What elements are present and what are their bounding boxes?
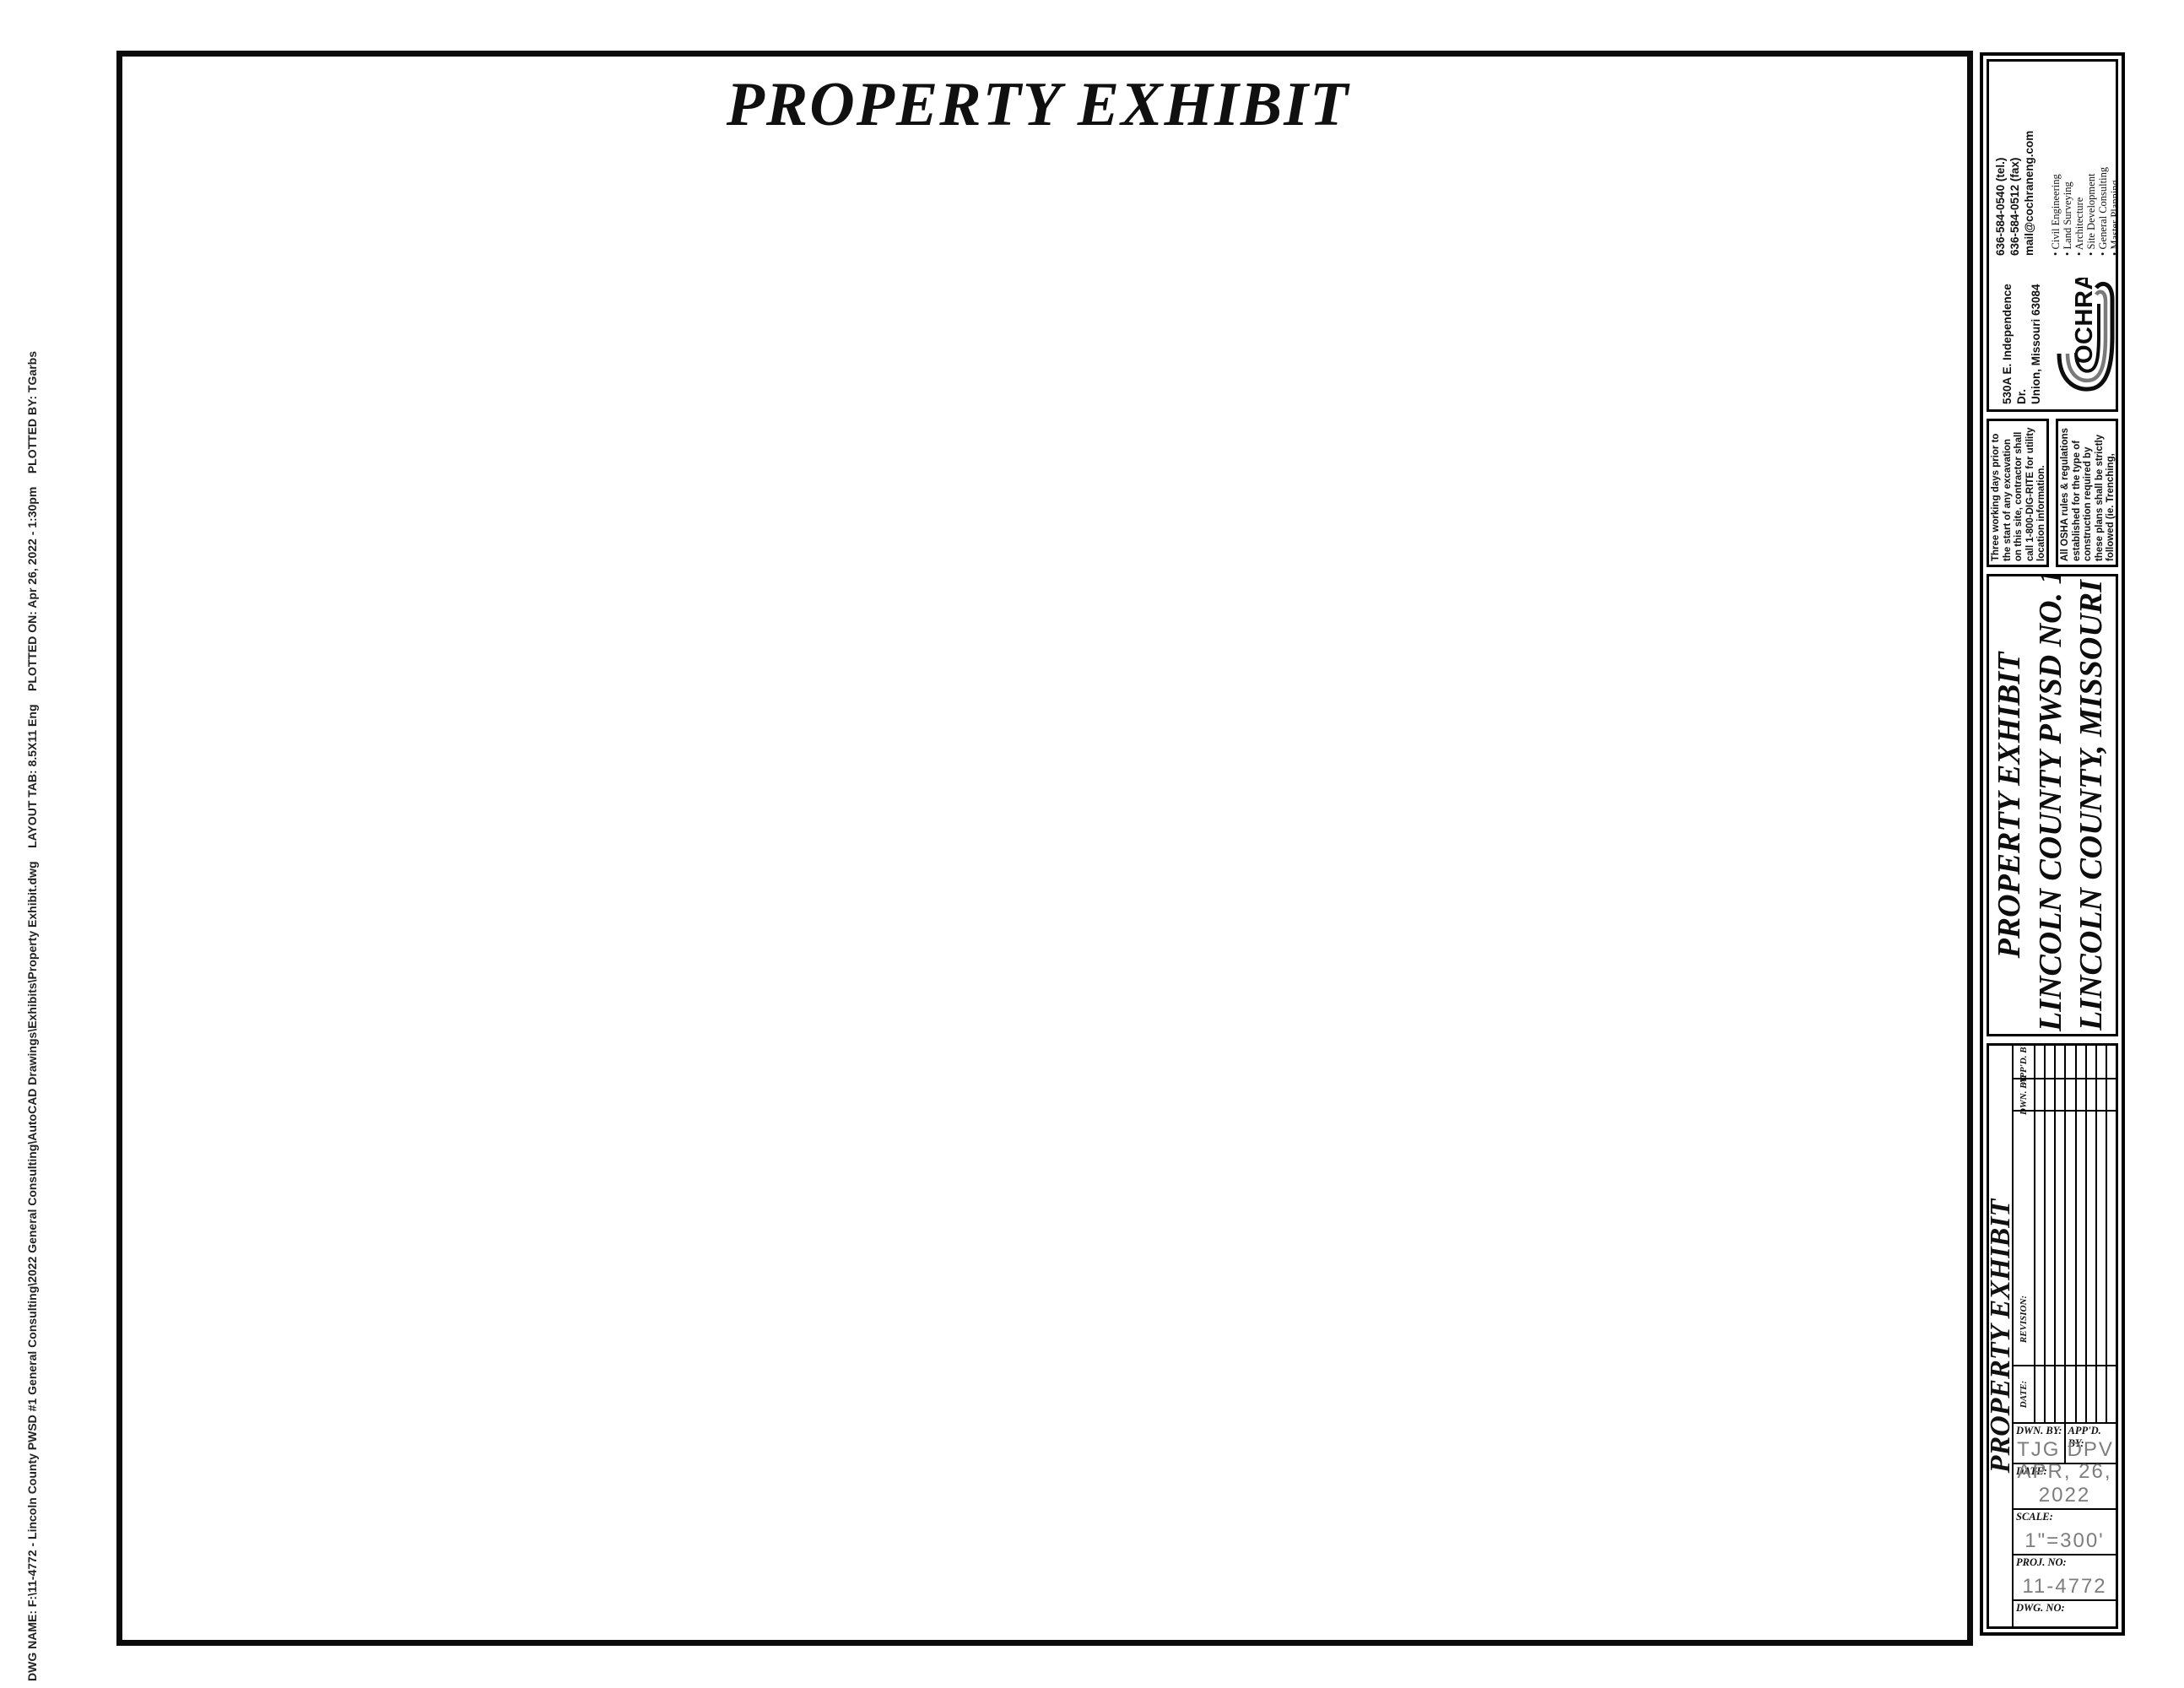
project-line3: LINCOLN COUNTY, MISSOURI <box>2071 579 2112 1031</box>
revision-band-date: DATE: <box>2014 1366 2116 1424</box>
service-item: Site Development <box>2085 67 2097 256</box>
title-block-side-label: PROPERTY EXHIBIT <box>1987 1199 2017 1474</box>
title-block-side-label-cell: PROPERTY EXHIBIT <box>1989 1046 2014 1626</box>
rev-date-label: DATE: <box>2019 1381 2029 1408</box>
company-email: mail@cochraneng.com <box>2023 67 2037 256</box>
project-number-cell: PROJ. NO: 11-4772 <box>2014 1555 2116 1601</box>
scale-label: SCALE: <box>2016 1511 2053 1523</box>
title-block: PROPERTY EXHIBIT APP'D. BY: DWN. BY: REV… <box>1987 1043 2118 1629</box>
service-item: Civil Engineering <box>2050 67 2062 256</box>
dwn-by-value: TJG <box>2014 1438 2064 1462</box>
osha-note: All OSHA rules & regulations established… <box>2056 419 2118 567</box>
appd-by-value: DPV <box>2066 1438 2116 1462</box>
map-frame <box>116 51 1973 1646</box>
drawing-number-cell: DWG. NO: EX. 1 <box>2014 1601 2116 1626</box>
dwg-no-label: DWG. NO: <box>2016 1602 2065 1615</box>
rev-dwn-label: DWN. BY: <box>2019 1074 2029 1115</box>
service-item: Master Planning <box>2109 67 2118 256</box>
company-fax: 636-584-0512 (fax) <box>2008 67 2023 256</box>
revision-band-appd: APP'D. BY: <box>2014 1046 2116 1079</box>
date-cell: DATE: APR, 26, 2022 <box>2014 1464 2116 1510</box>
byline-row: DWN. BY: TJG APP'D. BY: DPV <box>2014 1424 2116 1464</box>
scale-value: 1"=300' <box>2014 1529 2116 1553</box>
proj-no-value: 11-4772 <box>2014 1575 2116 1599</box>
rev-revision-label: REVISION: <box>2019 1296 2029 1343</box>
company-panel: 530A E. Independence Dr. Union, Missouri… <box>1987 59 2118 412</box>
company-address-line1: 530A E. Independence Dr. <box>2001 278 2030 404</box>
drawn-by-cell: DWN. BY: TJG <box>2014 1424 2064 1463</box>
notes-panels: Three working days prior to the start of… <box>1983 415 2122 571</box>
dwn-by-label: DWN. BY: <box>2016 1425 2062 1437</box>
drawing-sheet: DWG NAME: F:\11-4772 - Lincoln County PW… <box>0 0 2184 1688</box>
service-item: Architecture <box>2073 67 2085 256</box>
title-block-sidebar: 530A E. Independence Dr. Union, Missouri… <box>1980 52 2125 1636</box>
revision-band-dwn: DWN. BY: <box>2014 1079 2116 1112</box>
dig-rite-note: Three working days prior to the start of… <box>1987 419 2049 567</box>
company-services: Civil Engineering Land Surveying Archite… <box>2050 67 2118 278</box>
sheet-title: PROPERTY EXHIBIT <box>338 69 1738 141</box>
project-line2: LINCOLN COUNTY PWSD NO. 1 <box>2030 579 2072 1031</box>
company-address-line2: Union, Missouri 63084 <box>2030 278 2044 404</box>
project-title-panel: PROPERTY EXHIBIT LINCOLN COUNTY PWSD NO.… <box>1987 574 2118 1036</box>
project-line1: PROPERTY EXHIBIT <box>1989 579 2030 1031</box>
cochran-wordmark: OCHRAN <box>2071 278 2098 364</box>
company-tel: 636-584-0540 (tel.) <box>1994 67 2008 256</box>
revision-band-revision: REVISION: <box>2014 1112 2116 1366</box>
dig-rite-note-text: Three working days prior to the start of… <box>1991 425 2045 561</box>
service-item: Land Surveying <box>2062 67 2073 256</box>
approved-by-cell: APP'D. BY: DPV <box>2064 1424 2116 1463</box>
company-address: 530A E. Independence Dr. Union, Missouri… <box>1989 278 2050 404</box>
service-item: General Consulting <box>2097 67 2109 256</box>
date-value: APR, 26, 2022 <box>2014 1460 2116 1507</box>
proj-no-label: PROJ. NO: <box>2016 1556 2067 1569</box>
osha-note-text: All OSHA rules & regulations established… <box>2060 425 2114 561</box>
cochran-logo: OCHRAN <box>2053 278 2118 404</box>
scale-cell: SCALE: 1"=300' <box>2014 1510 2116 1555</box>
company-contact: 636-584-0540 (tel.) 636-584-0512 (fax) m… <box>1989 67 2050 278</box>
